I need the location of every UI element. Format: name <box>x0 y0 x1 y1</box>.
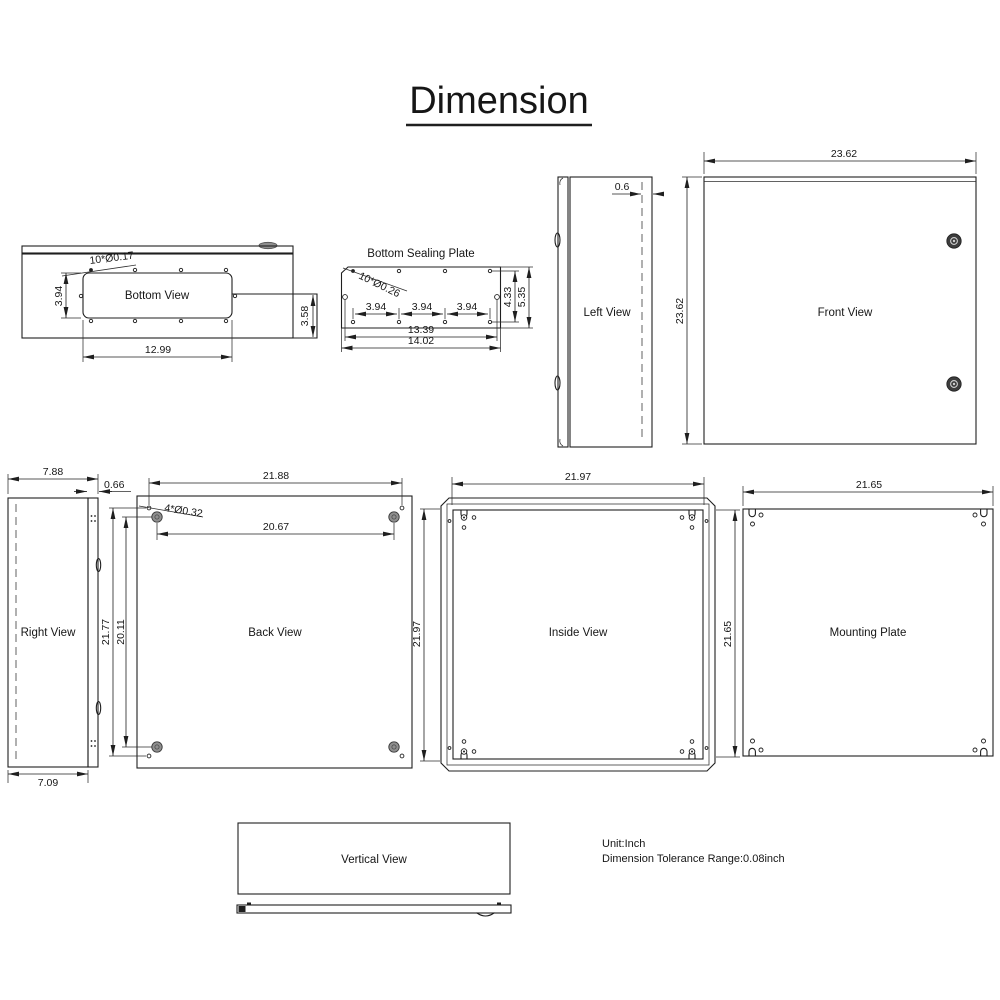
page-title: Dimension <box>409 80 589 122</box>
dim-sealing-plate-hole-rows: 4.33 <box>502 287 514 308</box>
vertical-view: Vertical View <box>237 823 511 916</box>
title-block: Dimension <box>406 80 592 125</box>
dim-bottom-view-flange-height: 3.58 <box>299 306 311 327</box>
hinge-block-icon <box>239 906 246 912</box>
dim-front-view-width: 23.62 <box>831 148 857 160</box>
mounting-plate: 21.65 Mounting Plate <box>743 479 993 756</box>
left-view-label: Left View <box>583 307 631 319</box>
dim-right-view-depth-top: 7.88 <box>43 466 64 478</box>
front-view-label: Front View <box>818 307 873 319</box>
dim-right-view-depth-bottom: 7.09 <box>38 777 59 789</box>
notes: Unit:Inch Dimension Tolerance Range:0.08… <box>602 838 785 865</box>
dim-back-view-boss-height: 20.11 <box>115 619 127 645</box>
latch-icon <box>947 377 961 391</box>
vertical-view-label: Vertical View <box>341 854 407 866</box>
dim-sealing-plate-width: 14.02 <box>408 335 434 347</box>
front-view: 23.62 23.62 Front View <box>674 148 976 444</box>
dim-front-view-height: 23.62 <box>674 298 686 324</box>
dim-inside-view-height: 21.97 <box>411 621 423 647</box>
dim-bottom-view-cutout-height: 3.94 <box>53 286 65 307</box>
dim-inside-view-plate-height: 21.65 <box>722 621 734 647</box>
dim-right-view-door: 0.66 <box>104 479 125 491</box>
dim-bottom-view-cutout-width: 12.99 <box>145 344 171 356</box>
dim-left-view-door-offset: 0.6 <box>615 181 630 193</box>
left-view: 0.6 Left View <box>555 177 664 447</box>
bottom-view-label: Bottom View <box>125 290 190 302</box>
inside-view-label: Inside View <box>549 627 608 639</box>
dim-back-view-boss-width: 20.67 <box>263 521 289 533</box>
right-view-label: Right View <box>21 627 76 639</box>
dim-sealing-plate-pitch-2: 3.94 <box>412 301 433 313</box>
dim-sealing-plate-holes: 10*Ø0.26 <box>357 270 402 300</box>
dim-sealing-plate-pitch-1: 3.94 <box>366 301 387 313</box>
dim-back-view-holes: 4*Ø0.32 <box>164 502 204 520</box>
dim-inside-view-width: 21.97 <box>565 471 591 483</box>
bottom-sealing-plate-title: Bottom Sealing Plate <box>367 248 474 260</box>
inside-view: 21.97 21.97 Inside View 21.65 <box>411 471 740 771</box>
back-view: 21.88 4*Ø0.32 20.67 Back View 21.77 20.1… <box>100 470 412 768</box>
dim-sealing-plate-height: 5.35 <box>516 287 528 308</box>
latch-icon <box>947 234 961 248</box>
drawing-svg: Dimension 10*Ø0.17 3.94 12.99 <box>0 0 1000 1000</box>
dim-mounting-plate-width: 21.65 <box>856 479 882 491</box>
dim-back-view-hole-height: 21.77 <box>100 619 112 645</box>
dimension-drawing: Dimension 10*Ø0.17 3.94 12.99 <box>0 0 1000 1000</box>
right-view: 7.88 0.66 Right View 7.09 <box>8 466 131 789</box>
dim-bottom-view-holes: 10*Ø0.17 <box>89 250 135 267</box>
dim-back-view-hole-width: 21.88 <box>263 470 289 482</box>
note-unit: Unit:Inch <box>602 838 645 850</box>
bottom-view: 10*Ø0.17 3.94 12.99 3.58 Bottom View <box>22 242 317 362</box>
back-view-label: Back View <box>248 627 302 639</box>
screw-dots <box>91 515 96 747</box>
mounting-plate-label: Mounting Plate <box>830 627 907 639</box>
dim-sealing-plate-pitch-3: 3.94 <box>457 301 478 313</box>
note-tolerance: Dimension Tolerance Range:0.08inch <box>602 853 785 865</box>
bottom-sealing-plate: Bottom Sealing Plate 10*Ø0.26 3.94 3.94 … <box>342 248 534 352</box>
leader-line <box>62 265 136 276</box>
